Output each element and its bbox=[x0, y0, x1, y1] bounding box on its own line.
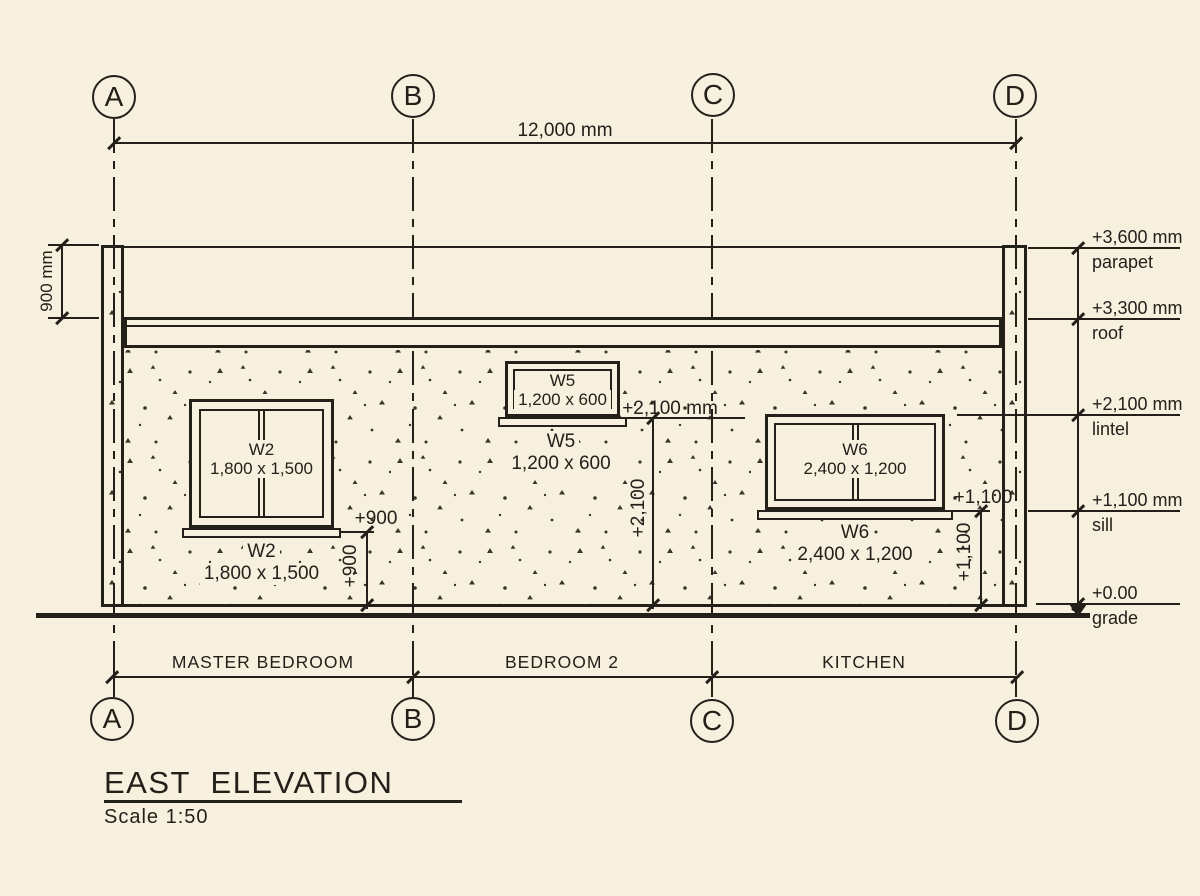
window-size: 1,800 x 1,500 bbox=[206, 459, 317, 478]
window-size: 2,400 x 1,200 bbox=[799, 459, 910, 478]
w2-sill-dim-vline bbox=[366, 531, 368, 609]
level-roof-value: +3,300 mm bbox=[1092, 298, 1183, 319]
level-parapet-value: +3,600 mm bbox=[1092, 227, 1183, 248]
window-w6-tag: W6 2,400 x 1,200 bbox=[765, 440, 945, 478]
grid-letter: A bbox=[103, 703, 122, 735]
lintel-dim-line bbox=[627, 417, 745, 419]
level-grade-label: grade bbox=[1092, 608, 1138, 629]
grid-bubble-d-bottom: D bbox=[995, 699, 1039, 743]
window-id: W5 bbox=[543, 431, 580, 453]
w6-sill-dim-line bbox=[953, 510, 990, 512]
roof-slab-inner-line bbox=[127, 325, 999, 327]
grid-bubble-a-top: A bbox=[92, 75, 136, 119]
window-id: W2 bbox=[243, 541, 280, 563]
window-id: W6 bbox=[837, 522, 874, 544]
window-w6-sill bbox=[757, 510, 953, 520]
w2-sill-dim: +900 bbox=[346, 508, 406, 530]
grid-letter: B bbox=[404, 80, 423, 112]
w2-sill-dim-rotated: +900 bbox=[340, 545, 362, 588]
parapet-dim-ext-top bbox=[48, 244, 99, 246]
grid-letter: C bbox=[703, 79, 723, 111]
lintel-dim-vline bbox=[652, 417, 654, 609]
bay-dim-line bbox=[112, 676, 1018, 678]
grid-letter: A bbox=[105, 81, 124, 113]
window-w2-sill bbox=[182, 528, 341, 538]
level-sill-value: +1,100 mm bbox=[1092, 490, 1183, 511]
window-w6-caption: W6 2,400 x 1,200 bbox=[757, 522, 953, 566]
parapet-height-dim: 900 mm bbox=[37, 250, 57, 311]
grid-letter: D bbox=[1005, 80, 1025, 112]
level-roof-label: roof bbox=[1092, 323, 1123, 344]
gridline-b-stub bbox=[412, 677, 414, 697]
window-w5-sill bbox=[498, 417, 627, 427]
overall-width-dim: 12,000 mm bbox=[490, 120, 640, 142]
window-id: W6 bbox=[838, 440, 872, 459]
window-size: 1,800 x 1,500 bbox=[200, 563, 323, 585]
w6-sill-dim-rotated: +1,100 bbox=[954, 523, 976, 582]
grid-letter: B bbox=[404, 703, 423, 735]
room-label-bedroom-2: BEDROOM 2 bbox=[505, 652, 619, 673]
gridline-a-stub bbox=[113, 677, 115, 697]
window-w2-caption: W2 1,800 x 1,500 bbox=[182, 541, 341, 585]
lintel-level-line bbox=[957, 414, 1028, 416]
grid-bubble-d-top: D bbox=[993, 74, 1037, 118]
grid-letter: D bbox=[1007, 705, 1027, 737]
grid-bubble-c-top: C bbox=[691, 73, 735, 117]
elevation-drawing: W2 1,800 x 1,500 W2 1,800 x 1,500 W5 1,2… bbox=[0, 0, 1200, 896]
ground-line bbox=[36, 613, 1090, 618]
level-parapet-label: parapet bbox=[1092, 252, 1153, 273]
roof-slab bbox=[124, 317, 1002, 348]
gridline-c-stub bbox=[711, 677, 713, 697]
level-lintel-label: lintel bbox=[1092, 419, 1129, 440]
window-w2-tag: W2 1,800 x 1,500 bbox=[189, 440, 334, 478]
title-underline bbox=[104, 800, 462, 803]
window-size: 2,400 x 1,200 bbox=[793, 544, 916, 566]
grid-bubble-b-top: B bbox=[391, 74, 435, 118]
grid-letter: C bbox=[702, 705, 722, 737]
drawing-title: EAST ELEVATION bbox=[104, 765, 393, 801]
w6-sill-dim-vline bbox=[980, 510, 982, 609]
parapet-dim-ext-bottom bbox=[48, 317, 99, 319]
grid-bubble-a-bottom: A bbox=[90, 697, 134, 741]
window-size: 1,200 x 600 bbox=[507, 453, 614, 475]
grid-bubble-b-bottom: B bbox=[391, 697, 435, 741]
window-id: W2 bbox=[245, 440, 279, 459]
drawing-scale: Scale 1:50 bbox=[104, 806, 209, 829]
level-connector-line bbox=[1077, 247, 1079, 604]
room-label-master-bedroom: MASTER BEDROOM bbox=[172, 652, 354, 673]
parapet-top-line bbox=[124, 246, 1002, 248]
lintel-dim-rotated: +2,100 bbox=[628, 479, 650, 538]
parapet-dim-line bbox=[61, 245, 63, 319]
level-sill-label: sill bbox=[1092, 515, 1113, 536]
room-label-kitchen: KITCHEN bbox=[822, 652, 906, 673]
window-w5-tag: W5 1,200 x 600 bbox=[505, 371, 620, 409]
level-grade-value: +0.00 bbox=[1092, 583, 1138, 604]
level-lintel-value: +2,100 mm bbox=[1092, 394, 1183, 415]
overall-dim-line bbox=[114, 142, 1017, 144]
grade-arrow-icon bbox=[1069, 604, 1087, 617]
grid-bubble-c-bottom: C bbox=[690, 699, 734, 743]
window-w5-caption: W5 1,200 x 600 bbox=[481, 431, 641, 475]
window-size: 1,200 x 600 bbox=[514, 390, 611, 409]
window-id: W5 bbox=[546, 371, 580, 390]
